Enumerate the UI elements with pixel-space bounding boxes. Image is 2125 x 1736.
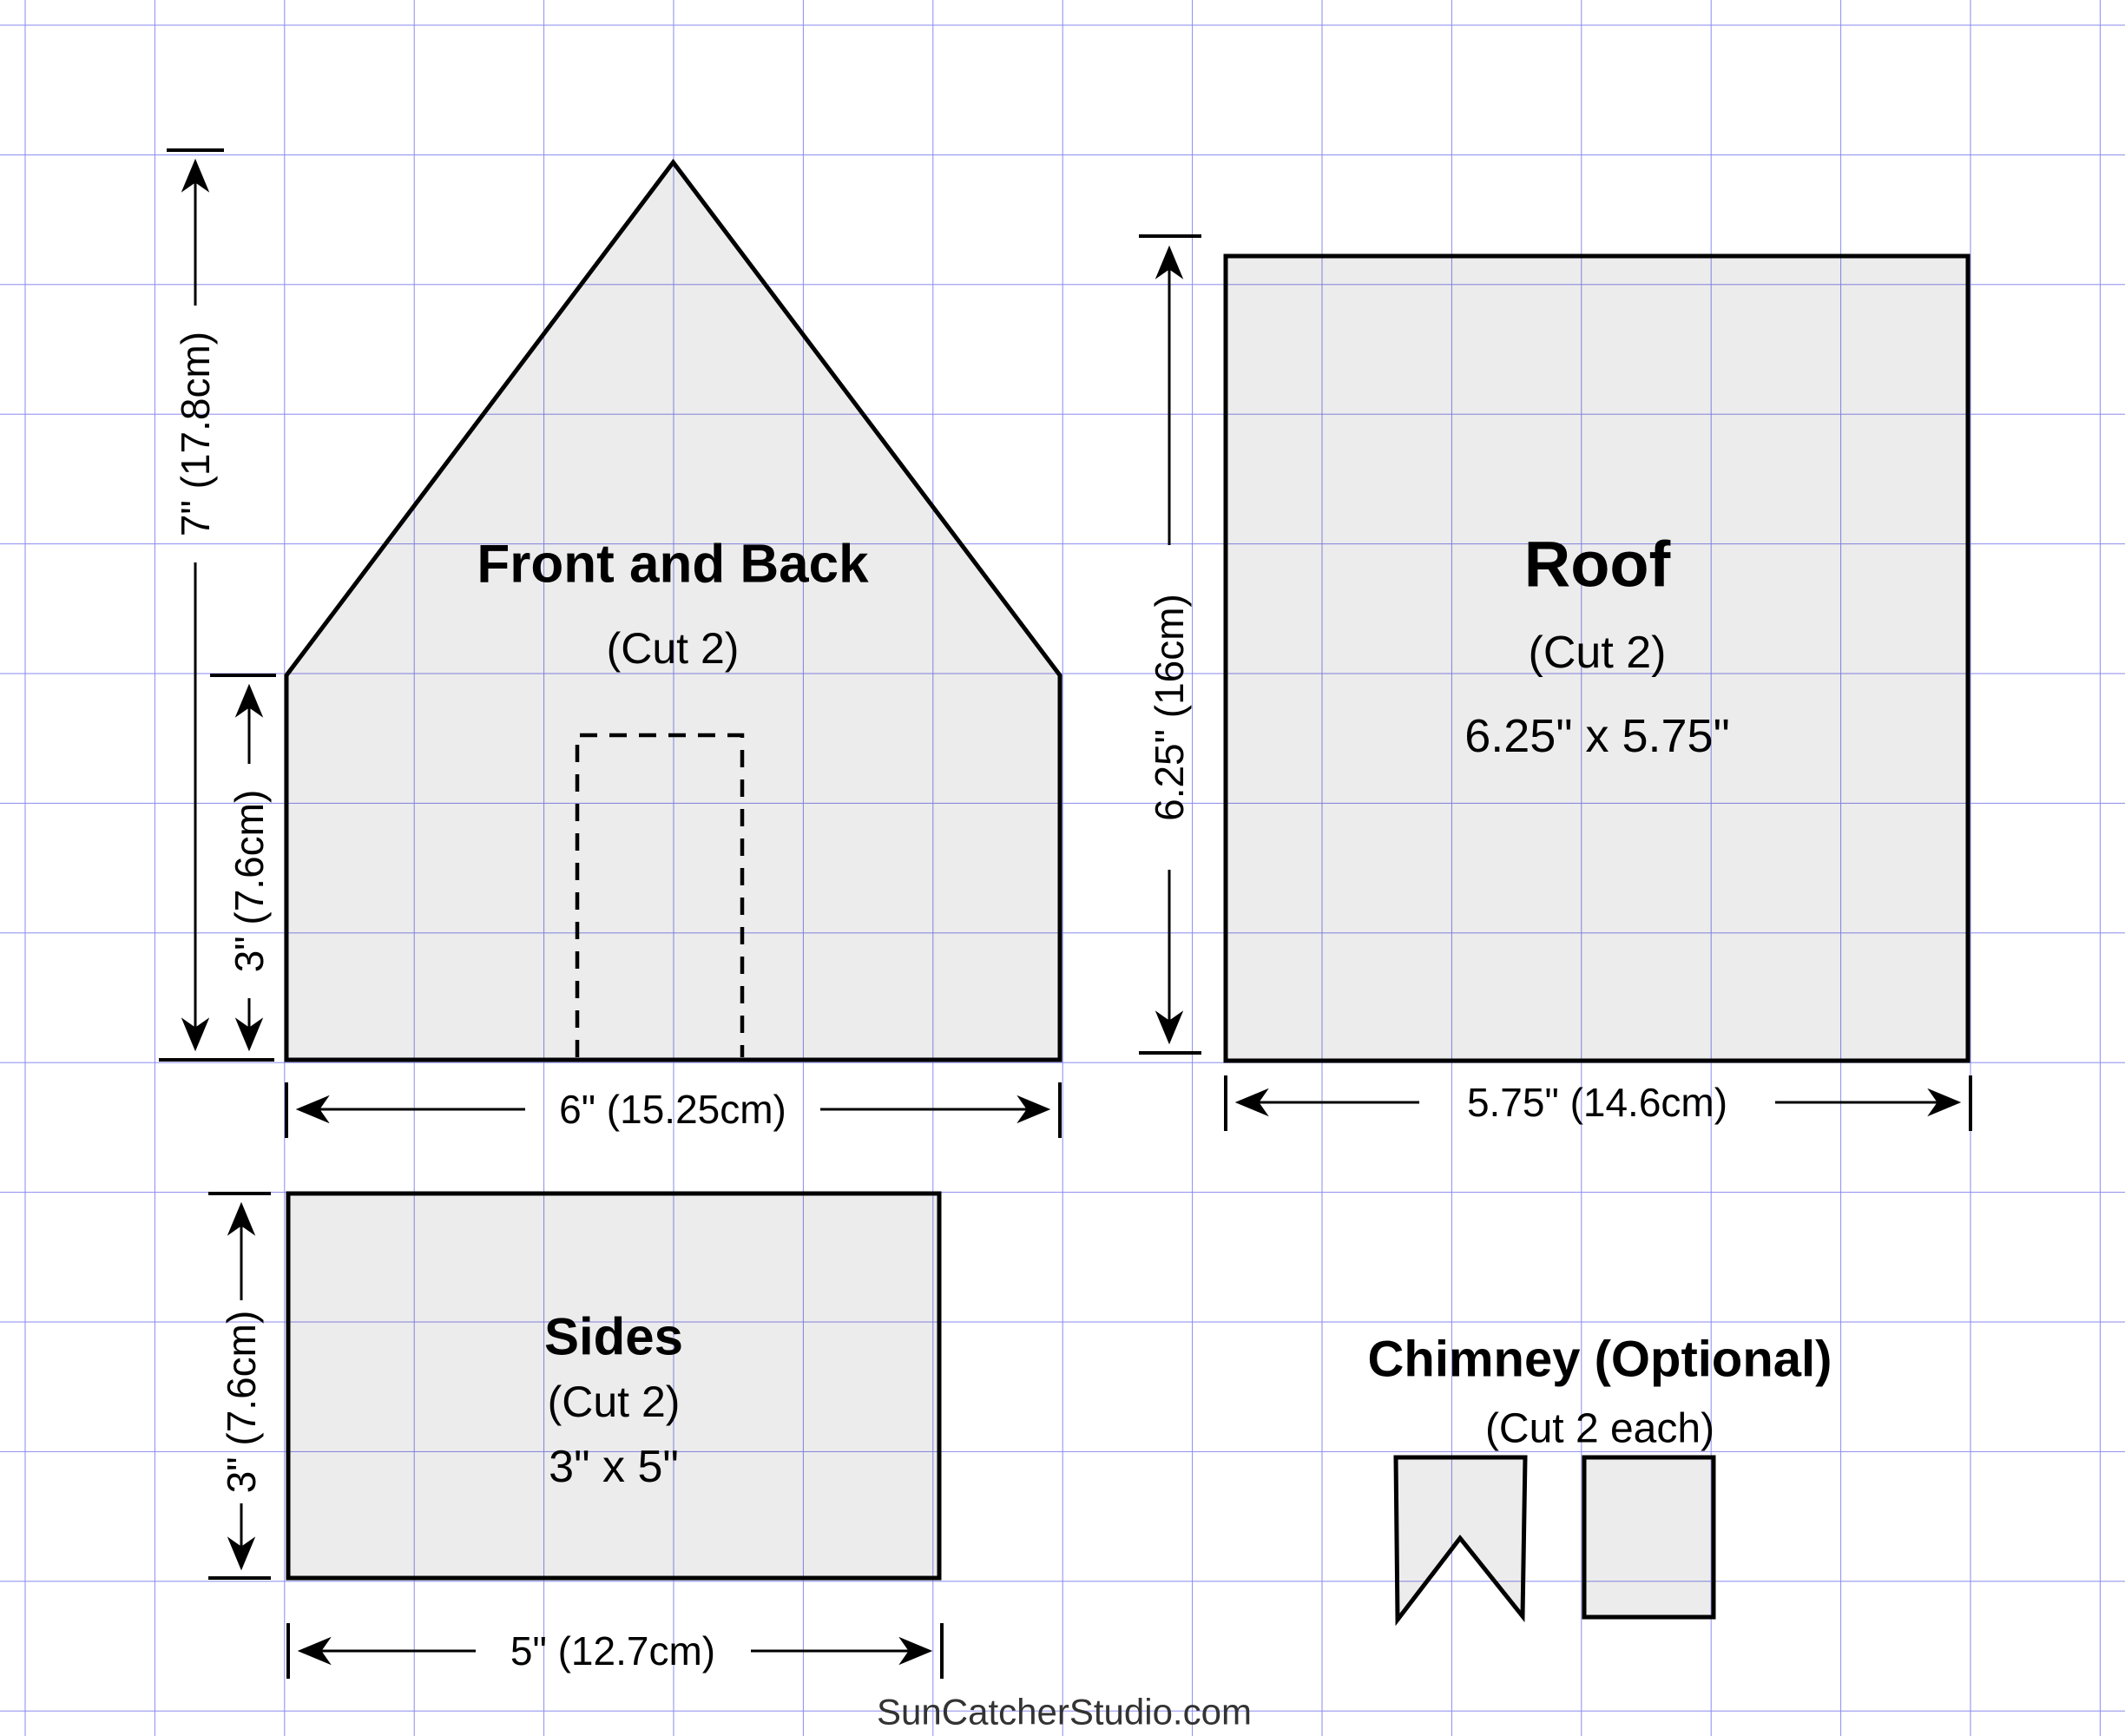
- chimney-cut-label: (Cut 2 each): [1485, 1406, 1714, 1452]
- dim-label-side-height: 3" (7.6cm): [219, 1311, 264, 1494]
- dim-label-front-total-height: 7" (17.8cm): [173, 332, 218, 536]
- sides-size-label: 3" x 5": [549, 1442, 679, 1492]
- dim-label-front-width: 6" (15.25cm): [559, 1087, 786, 1132]
- dim-label-side-width: 5" (12.7cm): [510, 1628, 715, 1674]
- front-back-cut-label: (Cut 2): [607, 624, 740, 673]
- roof-cut-label: (Cut 2): [1529, 628, 1667, 678]
- chimney-title: Chimney (Optional): [1368, 1332, 1832, 1388]
- dim-label-roof-length: 6.25" (16cm): [1147, 594, 1192, 821]
- front-back-title: Front and Back: [477, 535, 869, 595]
- dim-label-roof-width: 5.75" (14.6cm): [1467, 1080, 1727, 1125]
- roof-title: Roof: [1524, 529, 1671, 601]
- sides-cut-label: (Cut 2): [548, 1378, 681, 1426]
- gingerbread-house-template-canvas: Front and Back (Cut 2) Roof (Cut 2) 6.25…: [0, 0, 2125, 1736]
- dim-label-front-wall-height: 3" (7.6cm): [227, 790, 272, 973]
- roof-size-label: 6.25" x 5.75": [1464, 710, 1730, 762]
- chimney-rect-piece-shape: [1584, 1457, 1714, 1617]
- sides-title: Sides: [544, 1308, 683, 1366]
- watermark-text: SunCatcherStudio.com: [877, 1692, 1252, 1733]
